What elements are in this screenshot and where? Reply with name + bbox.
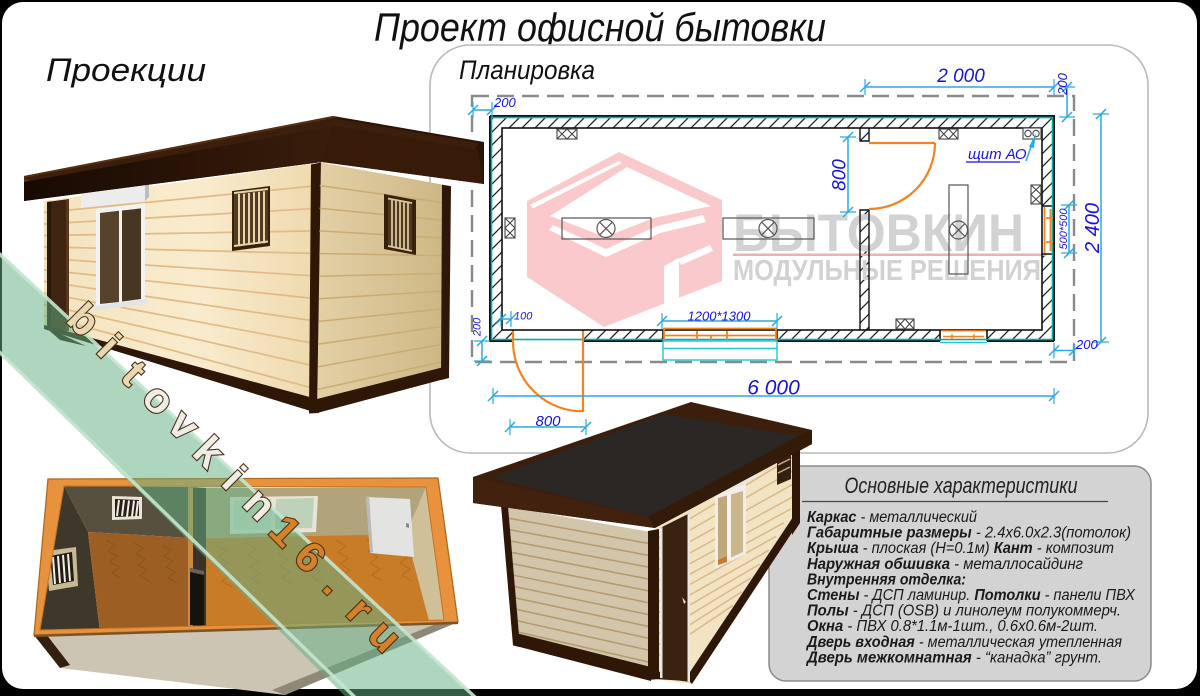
svg-text:500*500: 500*500 bbox=[1058, 208, 1070, 250]
svg-text:Наружная обшивка - металлосайд: Наружная обшивка - металлосайдинг bbox=[807, 556, 1083, 573]
svg-text:6 000: 6 000 bbox=[747, 377, 800, 400]
svg-text:Дверь межкомнатная - “канадка”: Дверь межкомнатная - “канадка” грунт. bbox=[805, 649, 1102, 666]
svg-text:2 000: 2 000 bbox=[936, 66, 985, 87]
svg-text:800: 800 bbox=[535, 413, 561, 430]
svg-text:Габаритные размеры - 2.4х6.0х2: Габаритные размеры - 2.4х6.0х2.3(потолок… bbox=[807, 525, 1131, 542]
svg-text:800: 800 bbox=[830, 159, 851, 191]
svg-text:100: 100 bbox=[514, 311, 533, 323]
svg-text:1200*1300: 1200*1300 bbox=[688, 309, 752, 324]
svg-text:МОДУЛЬНЫЕ РЕШЕНИЯ: МОДУЛЬНЫЕ РЕШЕНИЯ bbox=[733, 255, 1041, 287]
svg-text:Планировка: Планировка bbox=[459, 55, 595, 85]
svg-text:Дверь входная - металлическая: Дверь входная - металлическая утепленная bbox=[805, 634, 1122, 651]
svg-text:200: 200 bbox=[493, 95, 516, 110]
svg-text:Проект офисной бытовки: Проект офисной бытовки bbox=[374, 6, 826, 50]
svg-text:200: 200 bbox=[1055, 72, 1070, 95]
svg-text:Внутренняя отделка:: Внутренняя отделка: bbox=[807, 571, 966, 588]
svg-text:Стены - ДСП ламинир. Потолки -: Стены - ДСП ламинир. Потолки - панели ПВ… bbox=[807, 587, 1136, 604]
svg-text:Крыша - плоская (Н=0.1м) Кант: Крыша - плоская (Н=0.1м) Кант - композит bbox=[807, 540, 1114, 557]
svg-text:Окна - ПВХ 0.8*1.1м-1шт., 0.6х: Окна - ПВХ 0.8*1.1м-1шт., 0.6х0.6м-2шт. bbox=[807, 618, 1098, 635]
svg-text:Каркас - металлический: Каркас - металлический bbox=[807, 509, 977, 526]
svg-text:200: 200 bbox=[1075, 337, 1098, 352]
svg-text:200: 200 bbox=[472, 317, 484, 337]
svg-text:Проекции: Проекции bbox=[46, 52, 206, 88]
svg-text:Основные характеристики: Основные характеристики bbox=[845, 473, 1078, 498]
svg-text:Полы - ДСП (OSB) и линолеум по: Полы - ДСП (OSB) и линолеум полукоммерч. bbox=[807, 603, 1121, 620]
svg-text:щит АО: щит АО bbox=[968, 146, 1027, 163]
svg-text:2 400: 2 400 bbox=[1082, 203, 1104, 254]
